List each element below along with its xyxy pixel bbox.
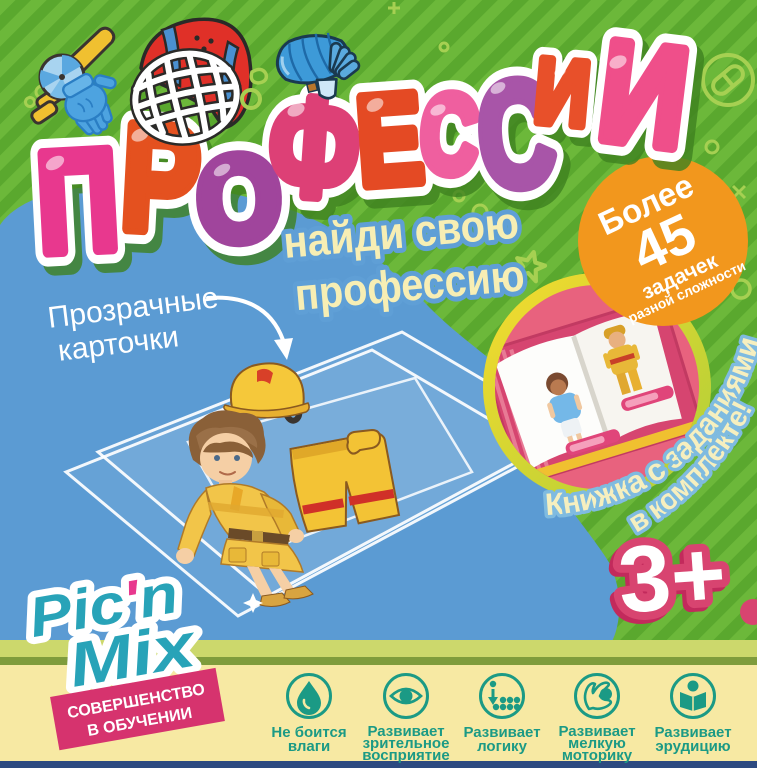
svg-text:Е: Е xyxy=(352,67,427,212)
svg-text:логику: логику xyxy=(477,738,527,755)
svg-text:П: П xyxy=(33,120,122,283)
svg-text:С: С xyxy=(418,72,481,198)
svg-text:3+: 3+ xyxy=(615,520,729,632)
svg-text:эрудицию: эрудицию xyxy=(655,738,730,755)
svg-text:моторику: моторику xyxy=(562,747,633,764)
svg-text:восприятие: восприятие xyxy=(362,747,449,764)
svg-text:И: И xyxy=(530,40,594,146)
svg-text:Ф: Ф xyxy=(264,68,364,228)
svg-text:влаги: влаги xyxy=(288,738,330,755)
